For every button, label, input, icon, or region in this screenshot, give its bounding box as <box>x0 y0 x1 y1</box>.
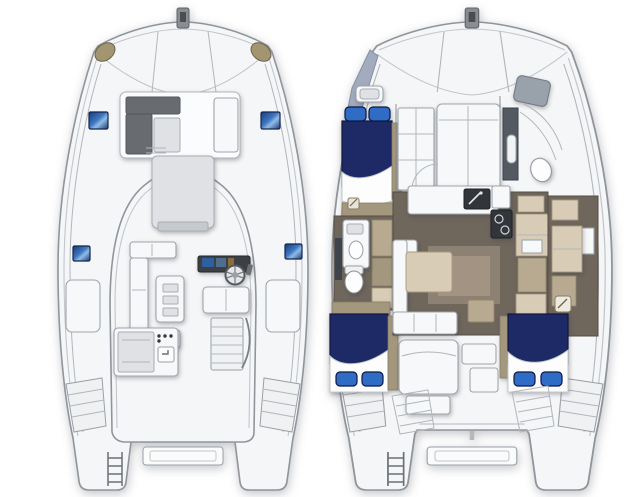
interior-plan <box>330 8 612 490</box>
salon-stool <box>468 300 494 322</box>
galley-sink <box>464 189 490 209</box>
wardrobe <box>398 108 434 190</box>
shower-panel <box>335 238 342 280</box>
deck-plan <box>58 8 308 490</box>
sink-symbol <box>555 296 571 312</box>
island-bed <box>437 104 500 190</box>
toilet <box>345 266 363 293</box>
port-aft-berth <box>330 302 398 392</box>
plans-svg <box>0 0 640 497</box>
salon <box>393 186 548 335</box>
vanity-sink <box>343 220 369 268</box>
head-sink <box>507 135 516 163</box>
cockpit-table <box>156 276 184 322</box>
foredeck-lounge <box>120 92 240 158</box>
helm-seat <box>203 287 249 313</box>
steering-wheel <box>226 266 245 285</box>
cockpit-seat <box>470 368 498 392</box>
sunpad <box>152 156 214 231</box>
flybridge <box>110 156 256 442</box>
deck-hatch <box>89 112 108 129</box>
deck-hatch <box>73 246 90 261</box>
sink-symbol <box>348 198 359 209</box>
galley-stove <box>491 210 512 238</box>
galley-cabinets <box>516 196 548 322</box>
salon-table <box>406 252 452 292</box>
deck-hatch <box>261 112 280 129</box>
catamaran-plans-canvas <box>0 0 640 497</box>
wet-bar-grill <box>114 328 178 376</box>
starboard-aft-berth <box>500 314 568 392</box>
side-locker-port <box>66 280 100 332</box>
cockpit-seat <box>462 344 496 364</box>
aft-sunbed <box>399 340 458 414</box>
side-locker-starboard <box>266 280 300 332</box>
deck-hatch <box>285 244 302 259</box>
foredeck-bench <box>214 98 238 152</box>
foredeck-table <box>154 118 180 152</box>
